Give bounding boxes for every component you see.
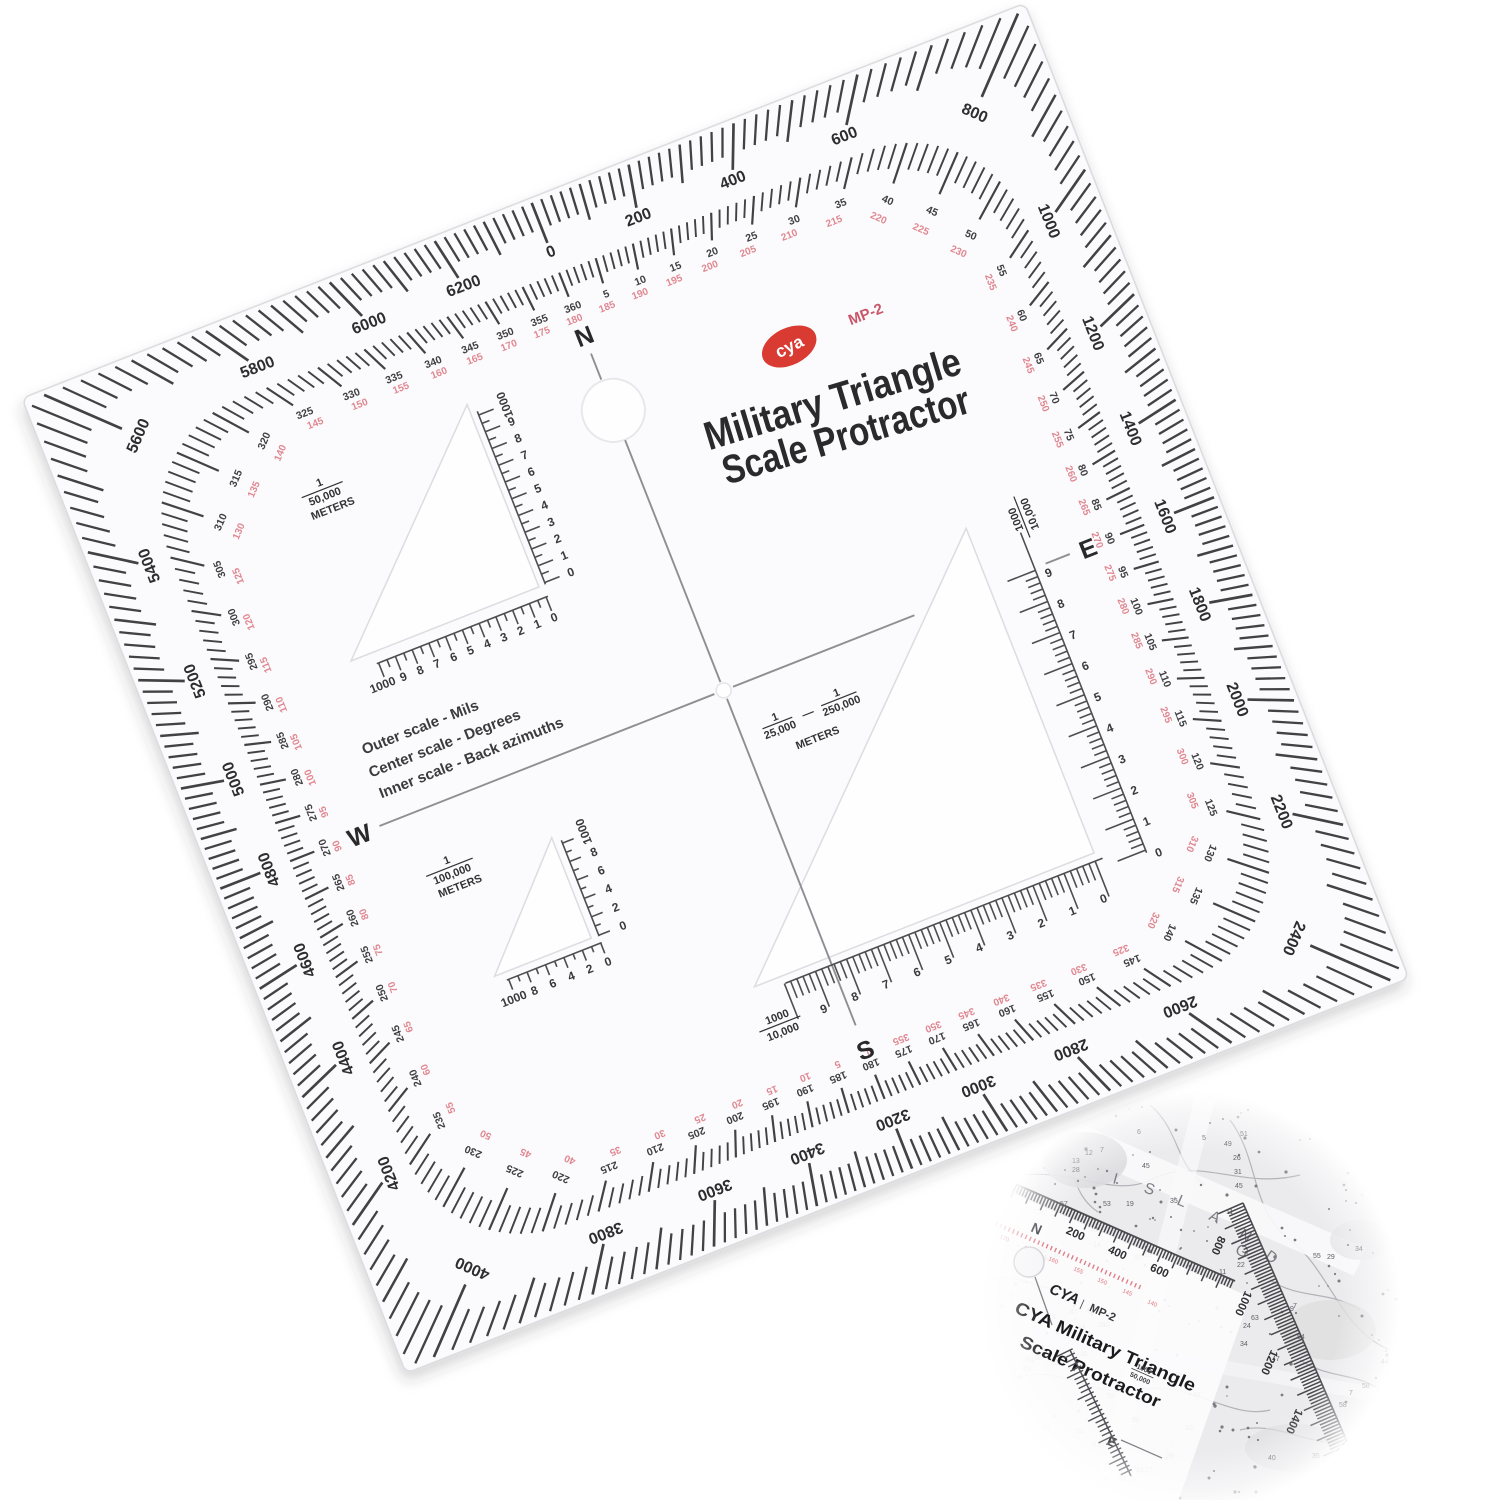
svg-text:175: 175 [973, 1223, 985, 1233]
